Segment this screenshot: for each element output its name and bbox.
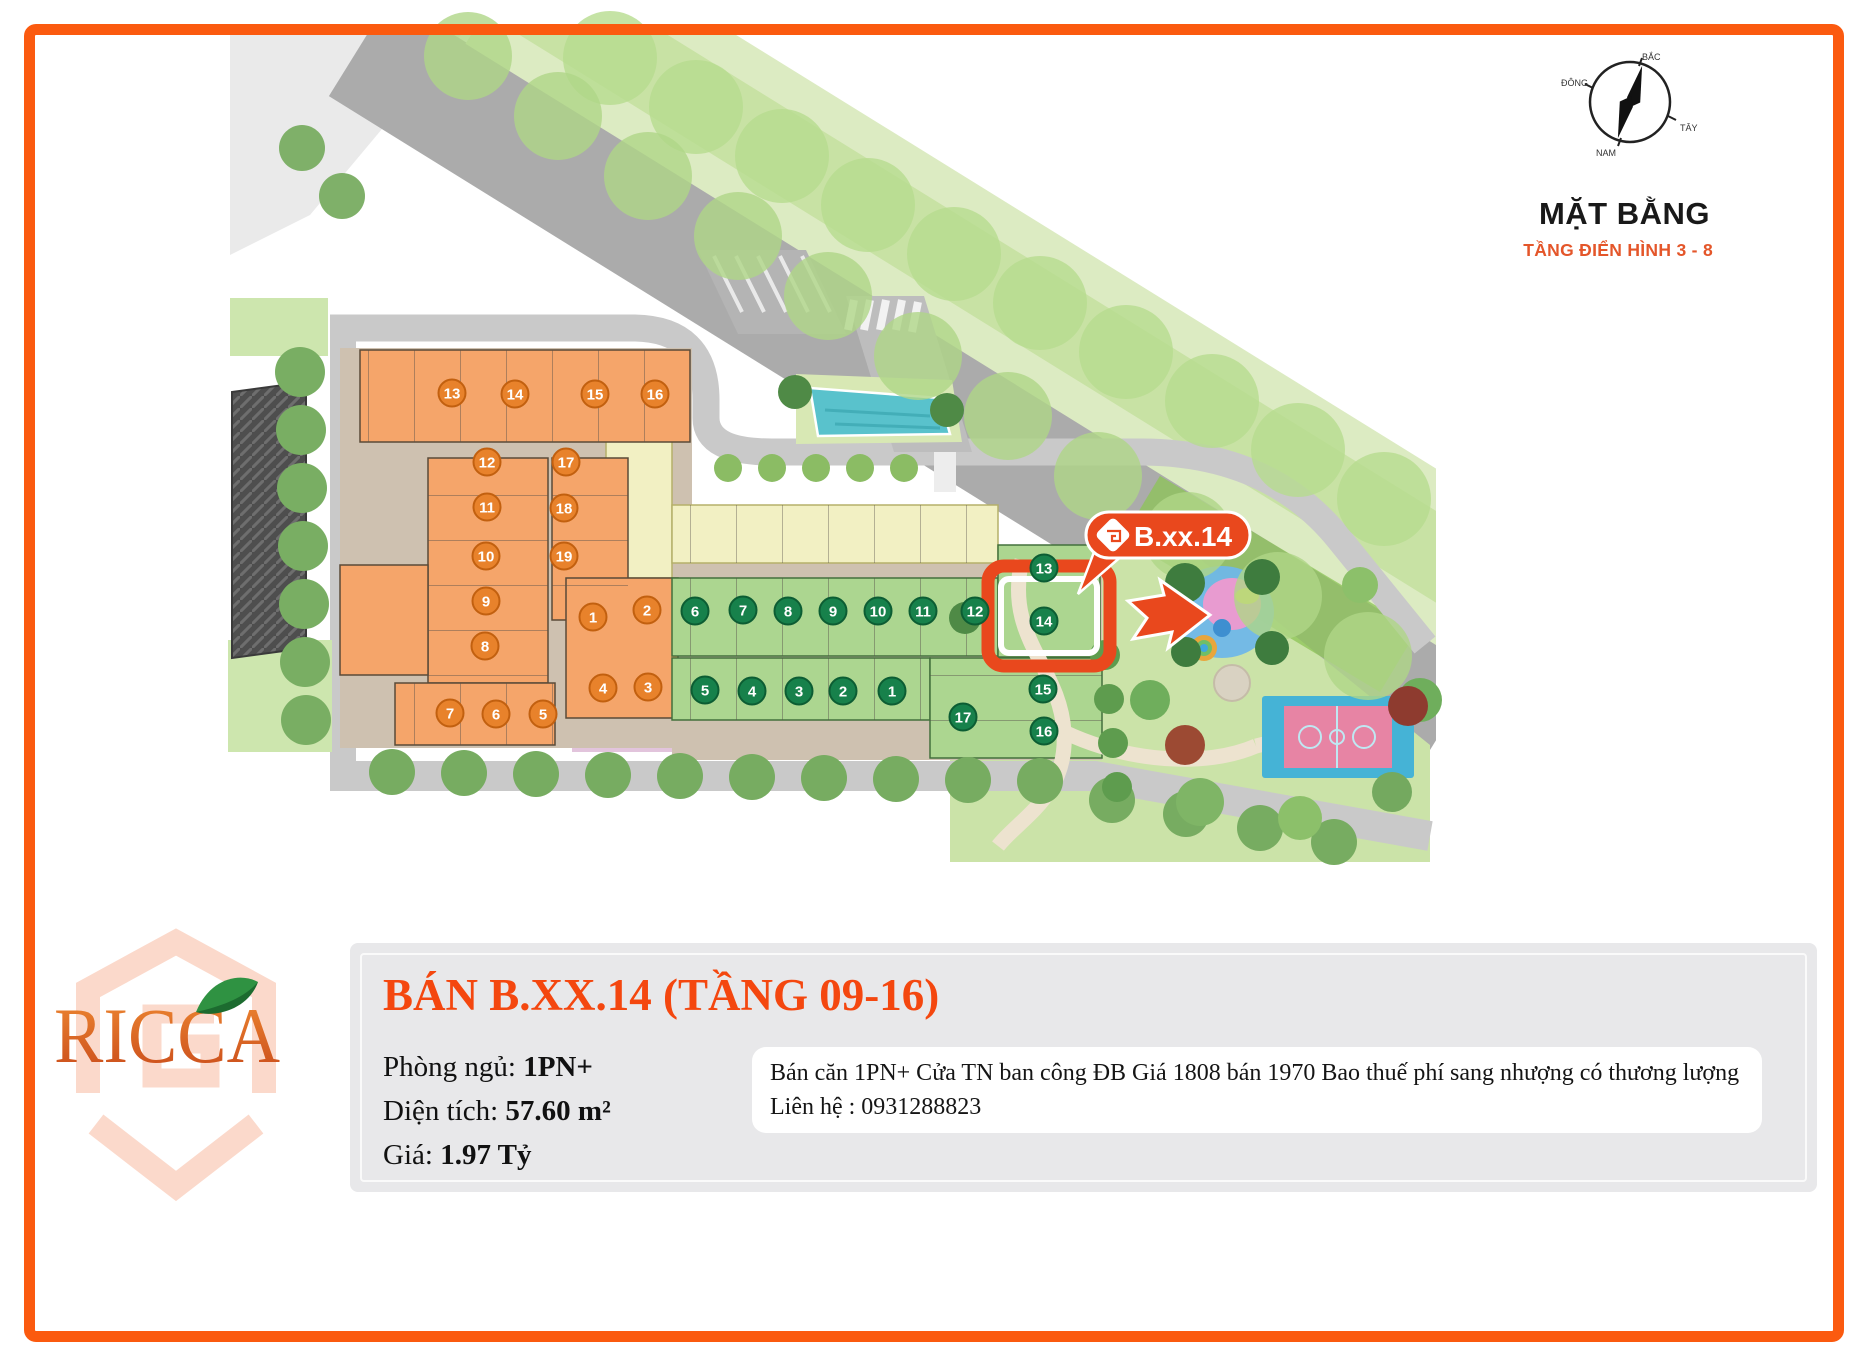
- tree: [801, 755, 847, 801]
- tree: [1372, 772, 1412, 812]
- unit-badge: 7: [730, 597, 757, 624]
- unit-badge: 6: [682, 598, 709, 625]
- unit-badge: 7: [437, 700, 464, 727]
- tree: [1079, 305, 1173, 399]
- tree: [1054, 432, 1142, 520]
- svg-text:17: 17: [558, 455, 575, 472]
- svg-text:11: 11: [479, 500, 495, 517]
- svg-text:17: 17: [955, 710, 972, 727]
- svg-text:16: 16: [647, 387, 664, 404]
- tree: [694, 192, 782, 280]
- tree: [278, 521, 328, 571]
- ricca-logo: RICCA: [54, 942, 280, 1186]
- tree: [907, 207, 1001, 301]
- svg-text:9: 9: [482, 594, 490, 611]
- tree: [1130, 680, 1170, 720]
- tree: [1278, 796, 1322, 840]
- tree: [1244, 559, 1280, 595]
- svg-text:16: 16: [1036, 724, 1053, 741]
- unit-badge: 4: [739, 678, 766, 705]
- unit-badge: 10: [473, 543, 500, 570]
- tree: [280, 637, 330, 687]
- spec-area: Diện tích: 57.60 m²: [383, 1089, 611, 1133]
- svg-text:6: 6: [691, 604, 699, 621]
- tree: [1251, 403, 1345, 497]
- unit-badge: 9: [473, 588, 500, 615]
- unit-badge: 15: [582, 381, 609, 408]
- tree: [1237, 805, 1283, 851]
- tree: [1176, 778, 1224, 826]
- unit-badge: 12: [474, 449, 501, 476]
- compass-west: TÂY: [1680, 123, 1698, 133]
- listing-specs: Phòng ngủ: 1PN+ Diện tích: 57.60 m² Giá:…: [383, 1045, 611, 1177]
- svg-text:8: 8: [784, 604, 792, 621]
- svg-text:18: 18: [556, 501, 573, 518]
- unit-badge: 13: [439, 380, 466, 407]
- unit-badge: 2: [634, 597, 661, 624]
- tree: [729, 754, 775, 800]
- svg-text:13: 13: [1036, 561, 1053, 578]
- svg-text:15: 15: [1035, 682, 1052, 699]
- svg-text:4: 4: [599, 681, 608, 698]
- tree: [758, 454, 786, 482]
- tree: [1337, 452, 1431, 546]
- tree: [514, 72, 602, 160]
- tree: [802, 454, 830, 482]
- tree: [993, 256, 1087, 350]
- spec-price: Giá: 1.97 Tỷ: [383, 1133, 611, 1177]
- tree: [821, 158, 915, 252]
- tree: [424, 12, 512, 100]
- unit-badge: 15: [1030, 676, 1057, 703]
- tree: [1388, 686, 1428, 726]
- svg-text:15: 15: [587, 387, 604, 404]
- tree: [874, 312, 962, 400]
- unit-badge: 6: [483, 701, 510, 728]
- svg-text:14: 14: [1036, 614, 1053, 631]
- plaza: [1214, 665, 1250, 701]
- svg-text:9: 9: [829, 604, 837, 621]
- unit-badge: 1: [580, 604, 607, 631]
- tree: [930, 393, 964, 427]
- tree: [1102, 772, 1132, 802]
- tree: [1165, 725, 1205, 765]
- unit-badge: 16: [1031, 718, 1058, 745]
- tree: [319, 173, 365, 219]
- unit-badge: 4: [590, 675, 617, 702]
- listing-description: Bán căn 1PN+ Cửa TN ban công ĐB Giá 1808…: [752, 1047, 1762, 1133]
- compass-north: BẮC: [1642, 52, 1661, 62]
- tree: [657, 753, 703, 799]
- compass-south: NAM: [1596, 148, 1616, 158]
- tree: [846, 454, 874, 482]
- tree: [1165, 354, 1259, 448]
- tree: [778, 375, 812, 409]
- tree: [277, 463, 327, 513]
- tree: [1098, 728, 1128, 758]
- tree: [945, 757, 991, 803]
- plan-subtitle: TẦNG ĐIỂN HÌNH 3 - 8: [1250, 240, 1713, 261]
- tree: [1017, 758, 1063, 804]
- svg-text:6: 6: [492, 707, 500, 724]
- brand-wordmark: RICCA: [54, 992, 280, 1079]
- svg-text:10: 10: [478, 549, 495, 566]
- unit-badge: 1: [879, 678, 906, 705]
- unit-badge: 13: [1031, 555, 1058, 582]
- unit-badge: 17: [950, 704, 977, 731]
- unit-badge: 17: [553, 449, 580, 476]
- tree: [964, 372, 1052, 460]
- tree: [1255, 631, 1289, 665]
- svg-text:19: 19: [556, 549, 573, 566]
- svg-text:5: 5: [701, 683, 709, 700]
- spec-bedrooms: Phòng ngủ: 1PN+: [383, 1045, 611, 1089]
- svg-text:7: 7: [739, 603, 747, 620]
- svg-text:4: 4: [748, 684, 757, 701]
- svg-text:8: 8: [481, 639, 489, 656]
- svg-text:12: 12: [967, 604, 984, 621]
- compass-east: ĐÔNG: [1561, 78, 1588, 88]
- unit-badge: 16: [642, 381, 669, 408]
- unit-badge: 14: [502, 381, 529, 408]
- unit-badge: 8: [472, 633, 499, 660]
- tree: [585, 752, 631, 798]
- tree: [1094, 684, 1124, 714]
- unit-badge: 5: [692, 677, 719, 704]
- svg-text:1: 1: [589, 610, 597, 627]
- tree: [1234, 552, 1322, 640]
- tree: [279, 579, 329, 629]
- unit-badge: 12: [962, 598, 989, 625]
- unit-badge: 19: [551, 543, 578, 570]
- svg-text:7: 7: [446, 706, 454, 723]
- tree: [275, 347, 325, 397]
- flyer-page: B.xx.14 13141516121711181019981243567678…: [0, 0, 1864, 1366]
- tree: [369, 749, 415, 795]
- svg-text:11: 11: [915, 604, 931, 621]
- tree: [276, 405, 326, 455]
- unit-badge: 10: [865, 598, 892, 625]
- unit-badge: 9: [820, 598, 847, 625]
- tree: [441, 750, 487, 796]
- plan-title: MẶT BẰNG: [1250, 196, 1710, 232]
- listing-title: BÁN B.XX.14 (TẦNG 09-16): [383, 969, 939, 1021]
- tree: [513, 751, 559, 797]
- tree: [735, 109, 829, 203]
- svg-text:3: 3: [795, 684, 803, 701]
- svg-text:2: 2: [839, 684, 847, 701]
- svg-text:14: 14: [507, 387, 524, 404]
- svg-text:3: 3: [644, 680, 652, 697]
- marker-label: B.xx.14: [1134, 521, 1232, 552]
- unit-badge: 18: [551, 495, 578, 522]
- unit-badge: 3: [635, 674, 662, 701]
- lawn-strip: [230, 298, 328, 356]
- svg-text:13: 13: [444, 386, 461, 403]
- tree: [1324, 612, 1412, 700]
- svg-text:2: 2: [643, 603, 651, 620]
- unit-badge: 5: [530, 701, 557, 728]
- unit-badge: 11: [474, 494, 501, 521]
- unit-badge: 3: [786, 678, 813, 705]
- tree: [784, 252, 872, 340]
- svg-text:10: 10: [870, 604, 887, 621]
- svg-text:1: 1: [888, 684, 896, 701]
- tree: [279, 125, 325, 171]
- tree: [1342, 567, 1378, 603]
- tree: [604, 132, 692, 220]
- tree: [873, 756, 919, 802]
- svg-text:5: 5: [539, 707, 547, 724]
- unit-badge: 8: [775, 598, 802, 625]
- unit-badge: 14: [1031, 608, 1058, 635]
- unit-badge: 11: [910, 598, 937, 625]
- tree: [890, 454, 918, 482]
- svg-text:12: 12: [479, 455, 496, 472]
- unit-badge: 2: [830, 678, 857, 705]
- tree: [281, 695, 331, 745]
- listing-panel: BÁN B.XX.14 (TẦNG 09-16) Phòng ngủ: 1PN+…: [350, 943, 1817, 1192]
- tree: [714, 454, 742, 482]
